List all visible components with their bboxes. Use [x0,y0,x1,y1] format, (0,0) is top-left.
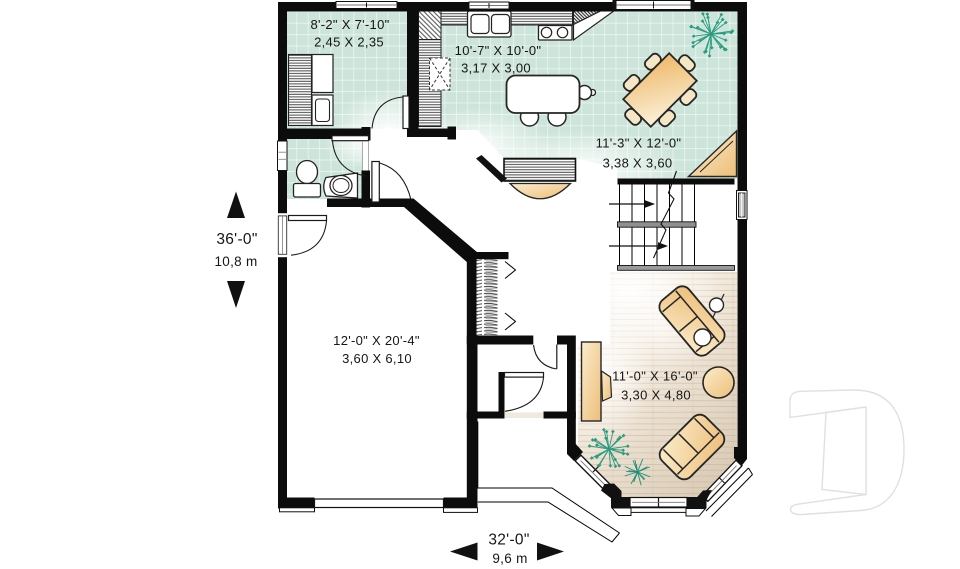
svg-text:36'-0": 36'-0" [216,231,257,248]
svg-text:11'-0" X 16'-0": 11'-0" X 16'-0" [612,369,698,384]
svg-text:10,8 m: 10,8 m [214,254,257,269]
svg-text:2,45 X 2,35: 2,45 X 2,35 [314,35,384,50]
svg-text:10'-7" X 10'-0": 10'-7" X 10'-0" [455,43,542,58]
svg-text:9,6 m: 9,6 m [492,551,527,566]
svg-text:8'-2" X 7'-10": 8'-2" X 7'-10" [310,17,389,32]
svg-text:12'-0" X 20'-4": 12'-0" X 20'-4" [333,333,420,348]
svg-text:11'-3" X 12'-0": 11'-3" X 12'-0" [596,136,682,151]
svg-text:3,60 X 6,10: 3,60 X 6,10 [342,351,412,366]
svg-text:3,17 X 3,00: 3,17 X 3,00 [461,61,531,76]
svg-text:3,38 X 3,60: 3,38 X 3,60 [603,156,673,171]
svg-text:32'-0": 32'-0" [488,532,529,549]
svg-text:3,30 X 4,80: 3,30 X 4,80 [621,388,691,403]
